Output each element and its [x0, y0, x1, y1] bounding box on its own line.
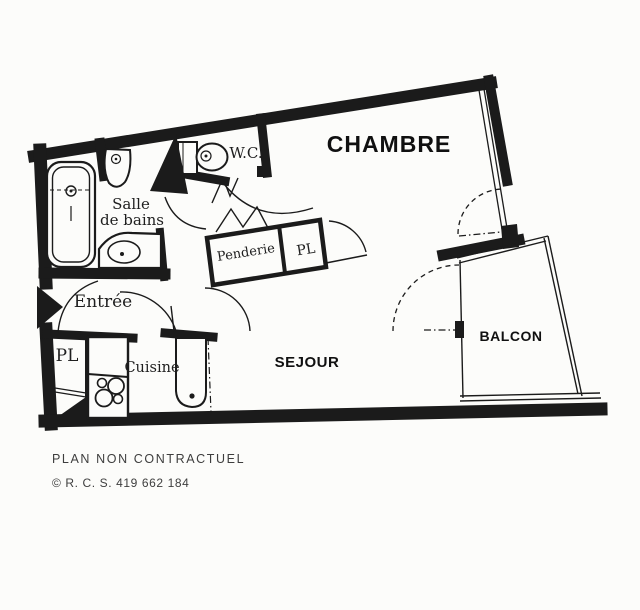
footer-disclaimer: PLAN NON CONTRACTUEL [52, 452, 245, 466]
wall-left-lower [46, 329, 51, 424]
wall-block-wc [257, 166, 270, 177]
hall-right-door-arc [205, 288, 250, 331]
chambre-door-leaf [326, 255, 367, 263]
room-label-entree: Entrée [74, 292, 132, 312]
wall-left-upper [40, 150, 46, 283]
room-label-sejour: SEJOUR [275, 354, 340, 371]
room-label-placard-lower: PL [56, 346, 79, 366]
window-door-arcs [393, 189, 503, 331]
room-label-wc: W.C. [229, 144, 262, 162]
wall-bath-bottom [44, 273, 165, 274]
wall-bath-stub [100, 143, 104, 176]
balcony-door-arc [393, 265, 459, 331]
room-label-chambre: CHAMBRE [327, 131, 452, 158]
chambre-door-arc [329, 221, 366, 252]
duct-triangle [59, 397, 86, 416]
kitchen-sejour-boundary [208, 338, 211, 412]
washbasin [105, 149, 131, 187]
bathroom-door-arc [165, 197, 206, 229]
balcony-railing [455, 236, 601, 401]
footer-registration: © R. C. S. 419 662 184 [52, 476, 189, 490]
room-label-placard-upper: PL [296, 241, 317, 260]
room-label-salle-de-bains-line2: de bains [100, 211, 164, 229]
balcony-door-block [455, 321, 464, 338]
room-label-cuisine: Cuisine [124, 360, 179, 376]
floor-plan-page: CHAMBRE W.C. Salle de bains Penderie PL … [0, 0, 640, 610]
water-heater [176, 338, 206, 407]
bathroom-sink-counter [99, 233, 161, 268]
kitchen-counter [88, 337, 128, 418]
bathtub [47, 162, 95, 267]
hall-door-leaf [171, 306, 174, 331]
wall-hall-bottom [165, 333, 213, 337]
toilet [178, 142, 228, 174]
room-label-balcon: BALCON [480, 328, 543, 344]
wc-door-arc [224, 184, 313, 213]
